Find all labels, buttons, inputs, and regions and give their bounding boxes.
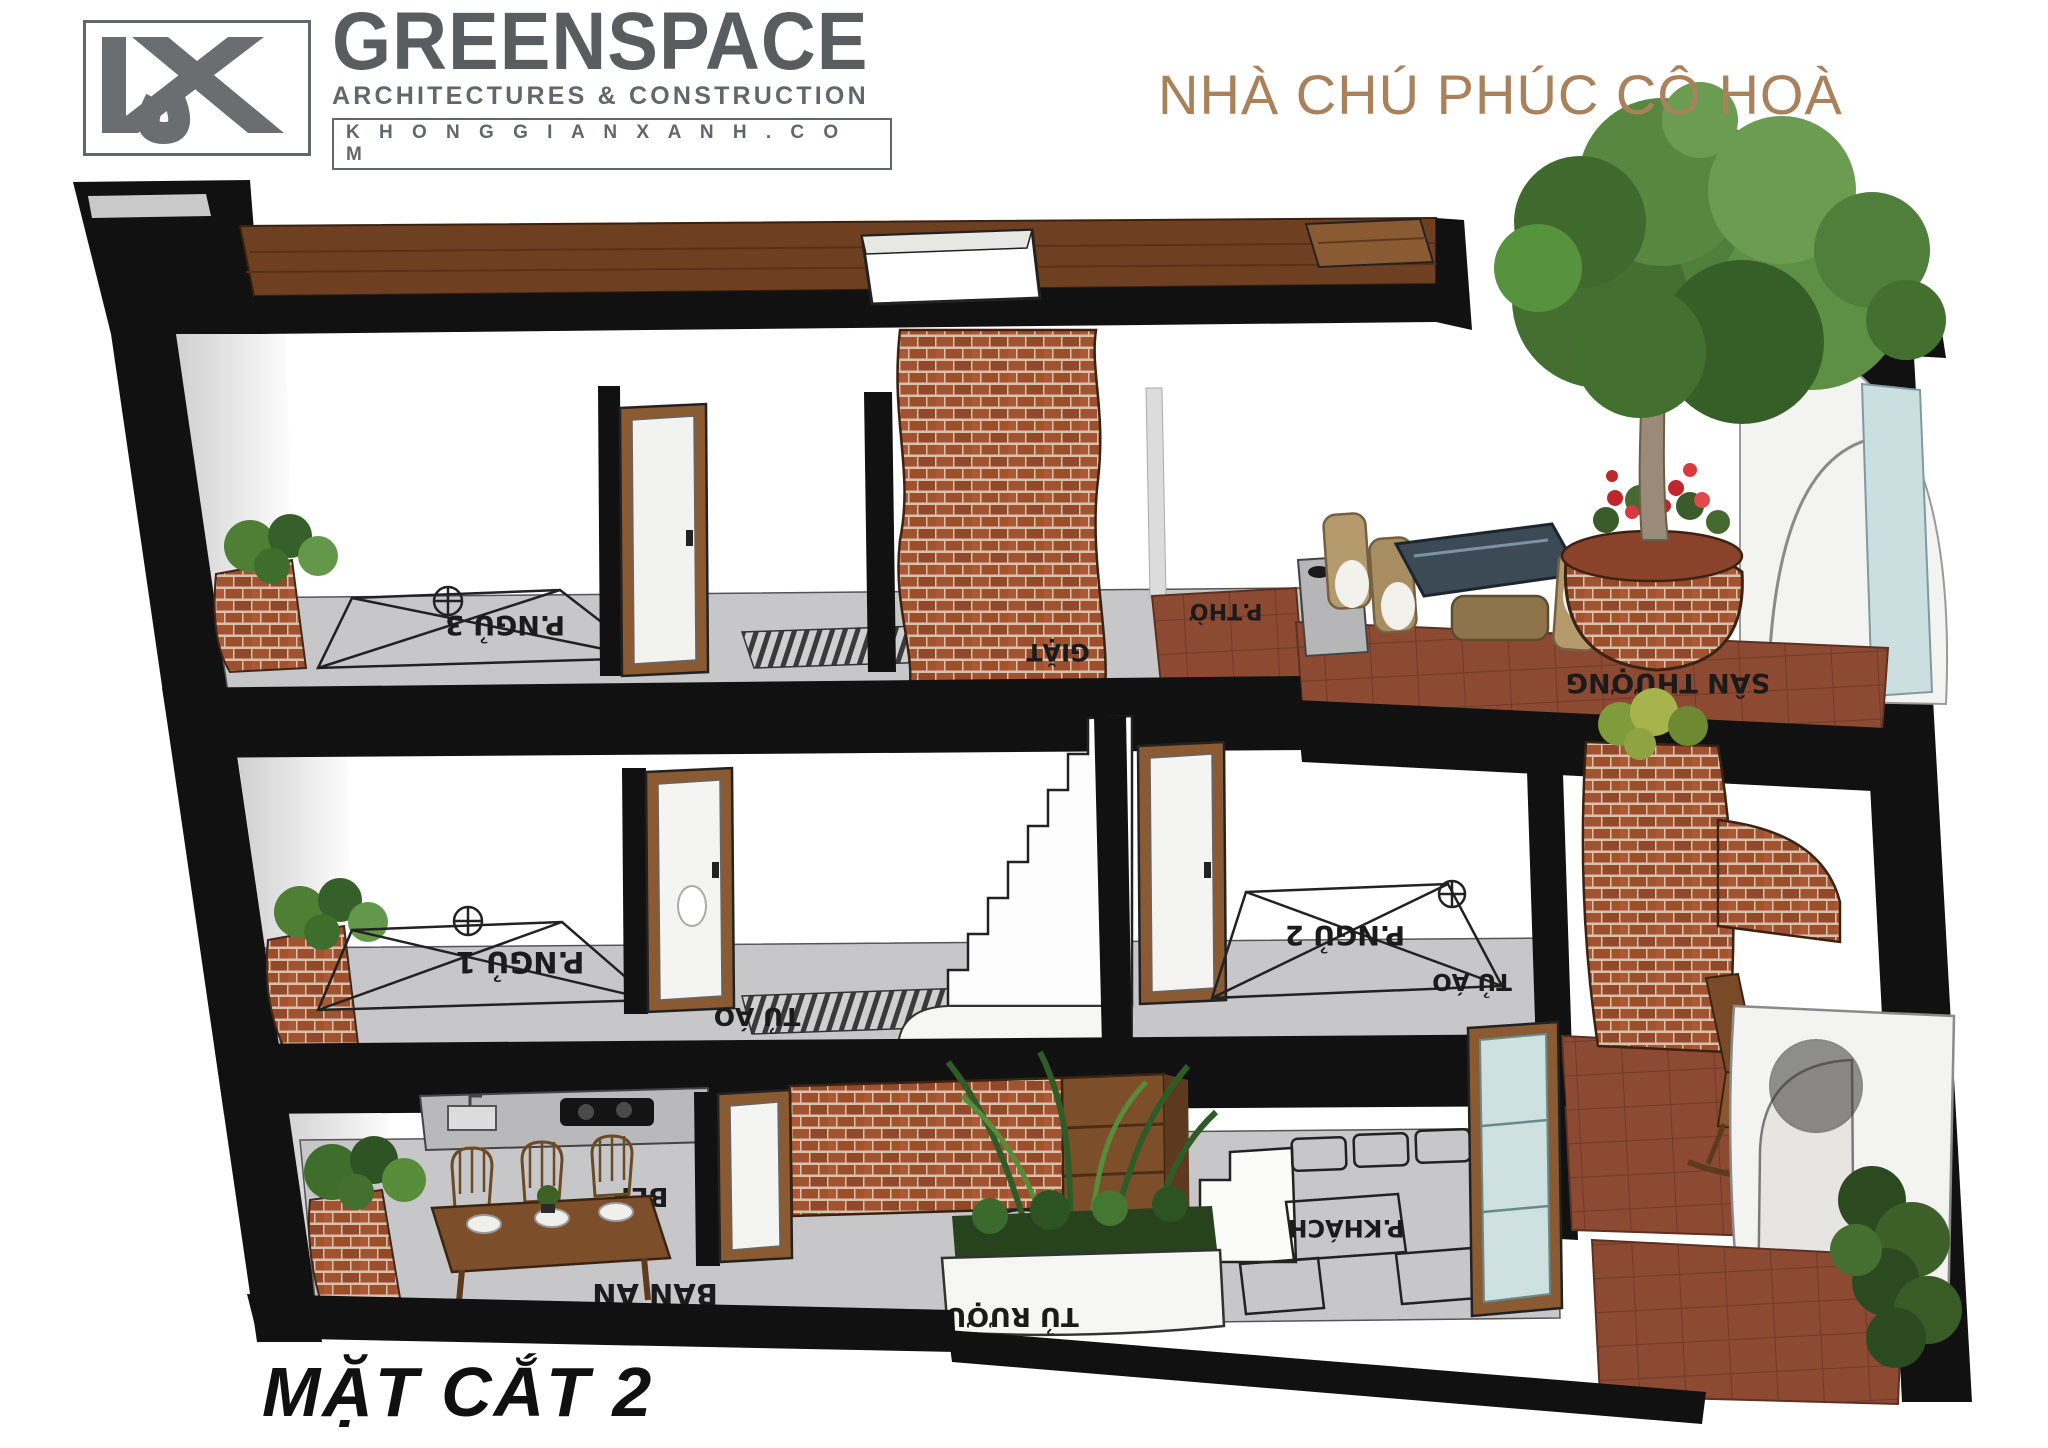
brand-block: GREENSPACE ARCHITECTURES & CONSTRUCTION … [332,4,892,170]
roof-wood-hatch [1306,219,1433,267]
slab-2 [162,676,1306,758]
project-title: NHÀ CHÚ PHÚC CÔ HOÀ [1158,62,1918,127]
bar-brick-wall [790,1078,1064,1216]
drawing-sheet: P.NGỦ 3 GIẶT P.THỜ [0,0,2048,1448]
section-drawing: P.NGỦ 3 GIẶT P.THỜ [0,0,2048,1448]
label-bedroom1: P.NGỦ 1 [456,945,585,983]
floor1-door [694,1090,792,1266]
label-worship: P.THỜ [1189,598,1262,624]
logo-monogram [86,23,302,147]
section-title: MẶT CẮT 2 [262,1352,653,1432]
floor2-bedroom2-door [1138,742,1226,1004]
glass-sliding-door [1468,1022,1562,1316]
kitchen-counter [420,1088,710,1150]
label-bedroom2: P.NGỦ 2 [1285,919,1405,955]
brand-website: K H O N G G I A N X A N H . C O M [332,118,892,170]
floor2-bathroom-door [622,768,734,1014]
roof-deck [240,218,1436,296]
label-wardrobe-left: TỦ ÁO [714,1002,801,1035]
label-bedroom3: P.NGỦ 3 [445,609,565,645]
kgx-logo [83,20,311,156]
floor3-bathroom-door [598,386,708,676]
skylight [862,230,1040,304]
label-laundry: GIẶT [1026,638,1090,668]
label-wardrobe-right: TỦ ÁO [1432,968,1512,998]
roof [73,180,1472,334]
brand-name: GREENSPACE [332,4,892,79]
ground-slab-right [948,1330,1706,1424]
label-living: P.KHÁCH [1287,1214,1404,1243]
